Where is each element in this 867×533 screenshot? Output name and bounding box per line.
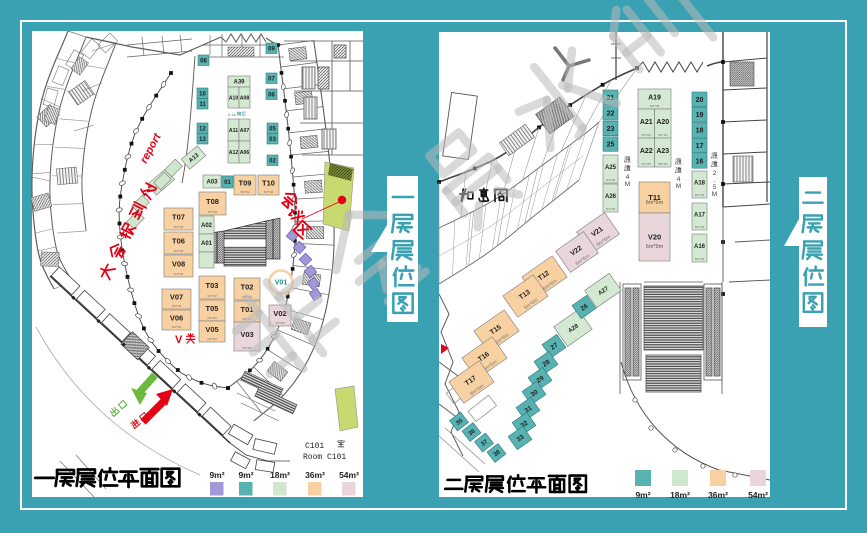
svg-text:6M*3M: 6M*3M (695, 257, 705, 261)
svg-text:19: 19 (696, 112, 704, 119)
svg-text:M: M (676, 183, 681, 190)
svg-text:18m²: 18m² (670, 490, 690, 500)
svg-text:V08: V08 (172, 260, 185, 269)
svg-text:16: 16 (696, 158, 704, 165)
svg-text:6M*3M: 6M*3M (658, 162, 668, 166)
svg-text:C101: C101 (305, 442, 324, 451)
svg-text:.: . (714, 177, 716, 184)
svg-text:4: 4 (626, 174, 630, 181)
svg-text:Room C101: Room C101 (303, 453, 346, 462)
svg-text:18m²: 18m² (270, 470, 290, 480)
svg-text:A22: A22 (640, 148, 653, 155)
svg-text:6M*6M: 6M*6M (174, 225, 184, 229)
svg-text:08: 08 (200, 58, 207, 64)
svg-text:A01: A01 (201, 241, 213, 247)
svg-text:T08: T08 (206, 197, 219, 206)
svg-text:9m²: 9m² (238, 470, 253, 480)
svg-text:6M*3M: 6M*3M (641, 133, 651, 137)
svg-text:T03: T03 (206, 281, 219, 290)
svg-text:5: 5 (713, 184, 717, 191)
svg-text:17: 17 (696, 143, 704, 150)
svg-text:A12: A12 (229, 150, 239, 156)
svg-text:06: 06 (268, 92, 275, 98)
svg-text:6M*6M: 6M*6M (264, 190, 274, 194)
svg-text:6M*6M: 6M*6M (207, 337, 217, 341)
svg-text:2: 2 (713, 170, 717, 177)
svg-text:6m*6m: 6m*6m (646, 200, 664, 206)
svg-text:6M*6M: 6M*6M (208, 210, 218, 214)
svg-text:A21: A21 (640, 119, 653, 126)
svg-text:11: 11 (199, 102, 206, 108)
svg-text:18: 18 (696, 128, 704, 135)
svg-text:6M*6M: 6M*6M (172, 304, 182, 308)
svg-text:54m²: 54m² (339, 470, 359, 480)
svg-text:6M*6M: 6M*6M (240, 190, 250, 194)
svg-text:T05: T05 (206, 304, 219, 313)
svg-text:01: 01 (224, 180, 231, 186)
svg-text:M: M (625, 181, 630, 188)
svg-text:V06: V06 (170, 314, 183, 323)
svg-text:36m²: 36m² (708, 490, 728, 500)
svg-text:T09: T09 (239, 179, 252, 188)
svg-text:A07: A07 (240, 128, 250, 134)
svg-text:6M*6M: 6M*6M (275, 321, 285, 325)
svg-text:20: 20 (696, 97, 704, 104)
svg-text:A20: A20 (656, 119, 669, 126)
svg-text:6M*3M: 6M*3M (606, 207, 616, 211)
svg-text:A39: A39 (233, 80, 245, 86)
svg-text:4: 4 (677, 176, 681, 183)
svg-text:6M*6M: 6M*6M (174, 272, 184, 276)
svg-text:6M*3M: 6M*3M (641, 162, 651, 166)
svg-text:6m*9m: 6m*9m (646, 244, 664, 250)
svg-text:A10: A10 (229, 95, 239, 101)
svg-text:6M*3M: 6M*3M (606, 178, 616, 182)
svg-text:T10: T10 (262, 179, 275, 188)
svg-text:A26: A26 (605, 194, 617, 200)
svg-text:54m²: 54m² (748, 490, 768, 500)
svg-text:V03: V03 (240, 330, 253, 339)
svg-text:A25: A25 (605, 165, 617, 171)
svg-text:6M*3M: 6M*3M (695, 193, 705, 197)
svg-text:V05: V05 (205, 325, 218, 334)
svg-text:M: M (712, 191, 717, 198)
svg-text:A19: A19 (648, 95, 661, 102)
svg-text:6M*3M: 6M*3M (658, 133, 668, 137)
svg-text:report: report (138, 131, 164, 166)
svg-text:6M*6M: 6M*6M (207, 294, 217, 298)
svg-text:T02: T02 (241, 283, 254, 292)
svg-text:A18: A18 (694, 181, 706, 187)
svg-text:03: 03 (269, 137, 276, 143)
svg-text:36m²: 36m² (305, 470, 325, 480)
svg-text:A08: A08 (240, 95, 250, 101)
svg-text:V: V (175, 334, 183, 346)
svg-text:22: 22 (607, 110, 615, 117)
svg-text:05: 05 (269, 126, 276, 132)
svg-text:9m²: 9m² (209, 470, 224, 480)
svg-text:A17: A17 (694, 213, 706, 219)
svg-text:5.1a: 5.1a (228, 112, 237, 117)
svg-text:07: 07 (268, 76, 275, 82)
svg-text:10: 10 (199, 91, 206, 97)
svg-text:A02: A02 (201, 223, 213, 229)
svg-text:9m²: 9m² (635, 490, 650, 500)
svg-text:09: 09 (268, 46, 275, 52)
svg-text:T06: T06 (172, 237, 185, 246)
svg-text:6M*6M: 6M*6M (207, 316, 217, 320)
svg-text:A16: A16 (694, 244, 706, 250)
svg-text:13: 13 (199, 137, 206, 143)
svg-text:6M*3M: 6M*3M (650, 104, 660, 108)
svg-text:V20: V20 (648, 233, 661, 242)
svg-text:V07: V07 (170, 293, 183, 302)
svg-text:A03: A03 (206, 180, 218, 186)
svg-text:12: 12 (199, 126, 206, 132)
svg-text:6M*6M: 6M*6M (172, 325, 182, 329)
svg-text:02: 02 (269, 158, 276, 164)
svg-text:T07: T07 (172, 213, 185, 222)
svg-text:25: 25 (607, 142, 615, 149)
svg-text:23: 23 (607, 126, 615, 133)
svg-text:V01: V01 (275, 280, 288, 287)
svg-text:A06: A06 (240, 150, 250, 156)
svg-text:A11: A11 (229, 128, 238, 134)
svg-text:6M*3M: 6M*3M (695, 225, 705, 229)
svg-text:A23: A23 (656, 148, 669, 155)
svg-text:6M*6M: 6M*6M (174, 249, 184, 253)
